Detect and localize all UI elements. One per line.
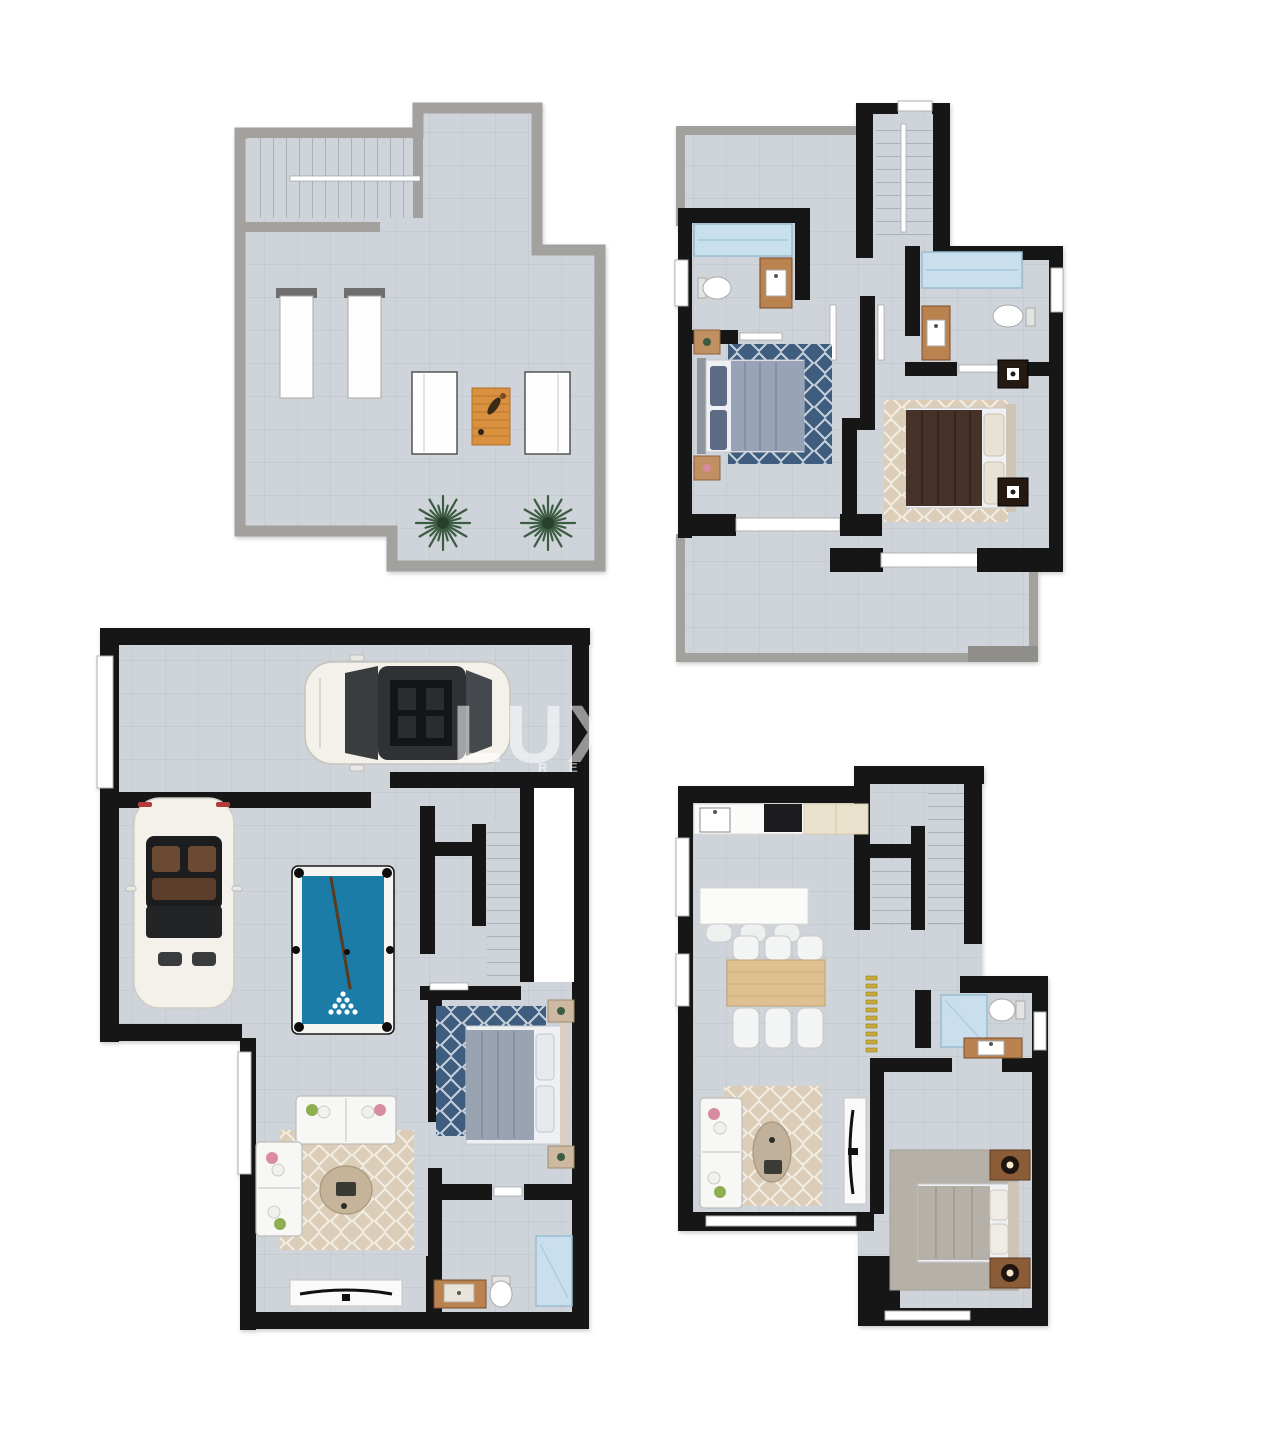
door: [494, 1187, 522, 1196]
stair-wall: [854, 766, 984, 784]
wall: [520, 786, 534, 982]
stair-wall: [964, 784, 982, 944]
floor-plan-sheet: LUX R E A: [0, 0, 1280, 1440]
sun-lounger: [344, 288, 385, 398]
lounge-chair: [412, 372, 457, 454]
wall: [240, 1312, 589, 1329]
window: [1051, 268, 1063, 312]
wall: [678, 208, 692, 538]
plan-ground-floor: [676, 766, 1048, 1326]
wall: [905, 362, 957, 376]
floor-plans-canvas: LUX R E A: [0, 0, 1280, 1440]
toilet: [993, 305, 1035, 327]
dining-chair: [733, 936, 759, 960]
stair-wall: [911, 826, 925, 930]
plan-bedroom-floor: [675, 101, 1063, 662]
door: [430, 983, 468, 990]
terrace-step: [968, 646, 1038, 662]
wall: [680, 208, 810, 223]
wall: [100, 1024, 242, 1041]
upper-block-wall: [413, 130, 423, 218]
coffee-table: [320, 1166, 372, 1214]
wall: [830, 548, 883, 572]
perimeter-wall: [676, 126, 860, 135]
wall: [678, 514, 736, 536]
dining-chair: [797, 936, 823, 960]
sun-lounger: [276, 288, 317, 398]
nightstand: [998, 360, 1028, 388]
window: [675, 260, 688, 306]
vanity-sink: [760, 258, 792, 308]
stair-wall: [933, 103, 950, 246]
wall: [977, 548, 1063, 572]
staircase: [928, 792, 964, 924]
wall: [905, 246, 920, 336]
wall: [100, 628, 590, 645]
window: [706, 1216, 856, 1226]
cooktop: [764, 804, 802, 832]
stair-hall-wall: [240, 222, 380, 232]
coffee-table: [753, 1122, 791, 1182]
watermark: LUX R E A: [452, 689, 625, 780]
wall: [795, 208, 810, 300]
pool-table: [292, 866, 394, 1034]
wall: [870, 1072, 884, 1214]
double-bed: [697, 358, 804, 454]
stair-wall: [856, 103, 873, 258]
window: [885, 1311, 970, 1320]
window: [676, 838, 689, 916]
window: [881, 553, 979, 567]
stair-handrail: [290, 176, 420, 181]
sofa: [296, 1096, 396, 1144]
nightstand: [990, 1258, 1030, 1288]
vanity-sink: [922, 306, 950, 360]
toilet: [698, 277, 731, 299]
nightstand: [998, 478, 1028, 506]
bar-stool: [706, 924, 732, 942]
window: [898, 101, 932, 111]
dining-table: [727, 960, 825, 1006]
wall: [842, 418, 857, 530]
nightstand: [548, 1146, 574, 1168]
plan-roof-terrace: [240, 108, 600, 566]
toilet: [490, 1276, 512, 1307]
stair-wall: [873, 103, 898, 114]
nightstand: [548, 1000, 574, 1022]
window: [1034, 1012, 1046, 1050]
staircase: [872, 862, 911, 924]
convertible-car: [126, 798, 242, 1008]
dining-chair: [765, 936, 791, 960]
toilet: [989, 999, 1025, 1021]
kitchen-counter: [694, 804, 868, 834]
sofa: [256, 1142, 302, 1236]
tv-console: [290, 1280, 402, 1306]
closet-door: [878, 305, 884, 360]
double-bed: [918, 1182, 1019, 1264]
lounge-chair: [525, 372, 570, 454]
kitchen-island: [700, 888, 808, 942]
wall: [435, 842, 473, 856]
window: [676, 954, 689, 1006]
nightstand: [694, 456, 720, 480]
vanity-sink: [964, 1038, 1022, 1058]
lightwell: [534, 788, 574, 982]
dining-set: [727, 936, 825, 1048]
stair-wall: [870, 844, 911, 858]
stair-wall: [932, 103, 950, 114]
wall: [428, 1184, 492, 1200]
nightstand: [694, 330, 720, 354]
staircase: [487, 820, 520, 984]
nightstand: [990, 1150, 1030, 1180]
wall: [915, 990, 931, 1048]
window: [736, 518, 840, 531]
wall: [860, 296, 875, 430]
wall: [524, 1184, 588, 1200]
window: [238, 1052, 251, 1174]
dining-chair: [733, 1008, 759, 1048]
perimeter-wall: [676, 534, 685, 662]
watermark-sub-text: R E A: [538, 760, 617, 775]
dining-chair: [797, 1008, 823, 1048]
wall: [472, 824, 486, 926]
window: [97, 656, 113, 788]
stair-rail: [901, 124, 906, 232]
tv-console: [844, 1098, 866, 1204]
double-bed: [466, 1022, 570, 1146]
vanity-sink: [434, 1280, 486, 1308]
wooden-table: [472, 388, 510, 445]
dining-chair: [765, 1008, 791, 1048]
wall: [420, 806, 435, 954]
door: [959, 365, 999, 372]
sofa: [700, 1098, 742, 1208]
door: [740, 333, 782, 340]
wall: [870, 1058, 952, 1072]
wall: [678, 786, 870, 803]
